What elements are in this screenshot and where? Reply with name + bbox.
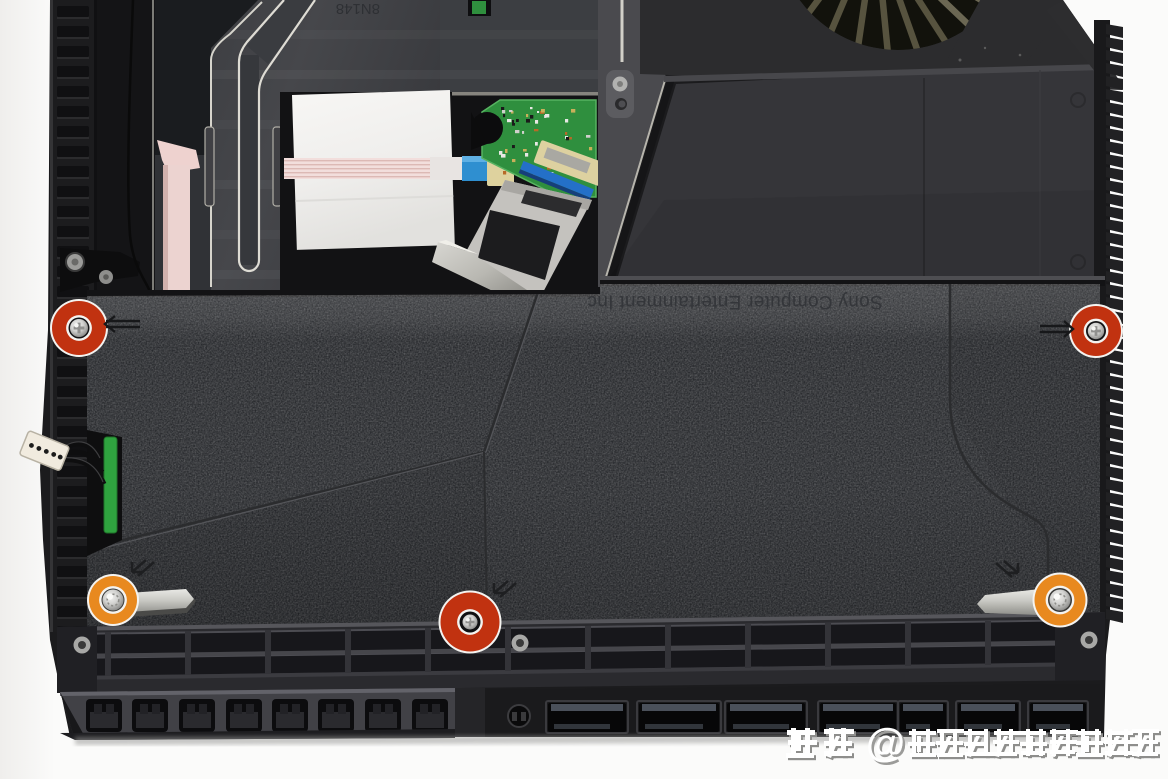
svg-text:@: @ xyxy=(866,721,905,765)
svg-text:8N148: 8N148 xyxy=(336,0,380,17)
svg-text:Sony Computer Entertainment In: Sony Computer Entertainment Inc xyxy=(587,291,883,312)
